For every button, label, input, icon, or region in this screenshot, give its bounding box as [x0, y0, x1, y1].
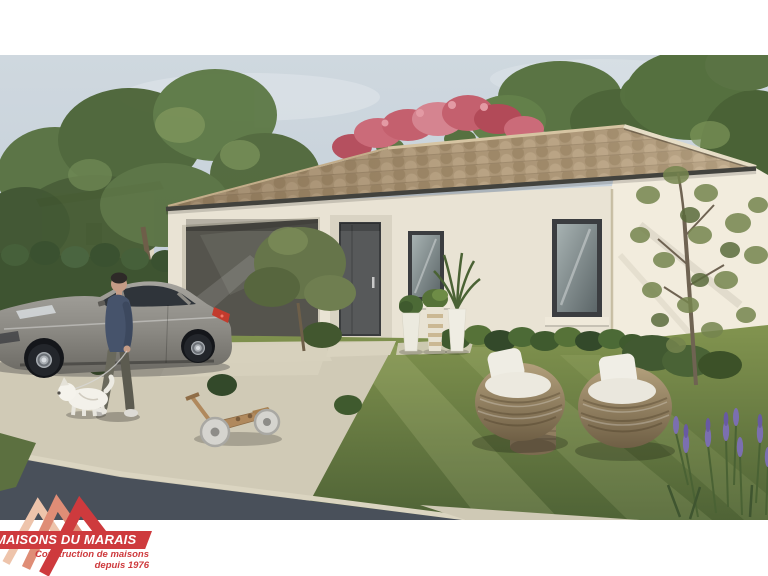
- hair: [111, 273, 127, 284]
- brand-tagline: Construction de maisons depuis 1976: [0, 550, 149, 571]
- door-handle: [372, 277, 375, 288]
- brand-tagline-line2: depuis 1976: [0, 561, 149, 572]
- seat-cushion: [588, 378, 656, 404]
- house-rendering-photo: [0, 55, 768, 520]
- scene-illustration: [0, 55, 768, 520]
- front-wheel: [28, 344, 60, 376]
- window-sill: [545, 317, 609, 325]
- rear-wheel: [184, 334, 212, 362]
- brand-logo: MAISONS DU MARAIS Construction de maison…: [0, 492, 260, 576]
- seat-cushion: [485, 372, 551, 398]
- right-window: [545, 219, 609, 327]
- rendering-canvas: MAISONS DU MARAIS Construction de maison…: [0, 0, 768, 576]
- brand-name: MAISONS DU MARAIS: [0, 531, 152, 549]
- logo-banner: MAISONS DU MARAIS: [0, 531, 152, 549]
